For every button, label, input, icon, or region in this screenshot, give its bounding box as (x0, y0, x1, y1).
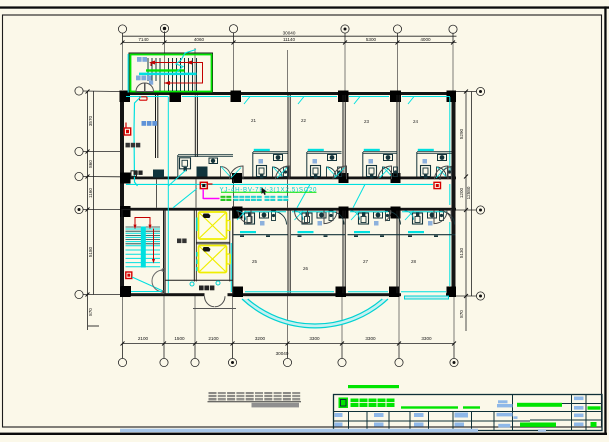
svg-text:27: 27 (363, 259, 369, 264)
svg-text:1200: 1200 (459, 187, 464, 198)
svg-text:5290: 5290 (459, 128, 464, 139)
svg-text:26: 26 (303, 266, 309, 271)
svg-text:5300: 5300 (366, 37, 377, 42)
svg-text:4000: 4000 (420, 37, 431, 42)
svg-text:30040: 30040 (283, 31, 296, 36)
svg-text:870: 870 (88, 308, 93, 316)
svg-text:21: 21 (251, 118, 257, 123)
svg-text:24: 24 (413, 119, 419, 124)
svg-text:23: 23 (364, 119, 370, 124)
svg-text:4060: 4060 (194, 37, 205, 42)
svg-text:2100: 2100 (208, 336, 219, 341)
svg-text:3570: 3570 (88, 115, 93, 126)
svg-text:7140: 7140 (138, 37, 149, 42)
svg-text:11140: 11140 (283, 37, 296, 42)
svg-text:860: 860 (88, 160, 93, 168)
svg-text:5130: 5130 (459, 247, 464, 258)
svg-text:870: 870 (459, 310, 464, 318)
svg-text:3200: 3200 (255, 336, 266, 341)
svg-text:3300: 3300 (365, 336, 376, 341)
svg-text:1500: 1500 (174, 336, 185, 341)
svg-text:12580: 12580 (466, 186, 471, 199)
svg-text:5180: 5180 (88, 246, 93, 257)
svg-text:2100: 2100 (138, 336, 149, 341)
svg-text:22: 22 (301, 118, 307, 123)
svg-text:3300: 3300 (421, 336, 432, 341)
svg-text:28: 28 (411, 259, 417, 264)
svg-text:1160: 1160 (88, 188, 93, 198)
svg-text:3300: 3300 (309, 336, 320, 341)
svg-text:30040: 30040 (276, 351, 289, 356)
svg-text:25: 25 (252, 259, 258, 264)
